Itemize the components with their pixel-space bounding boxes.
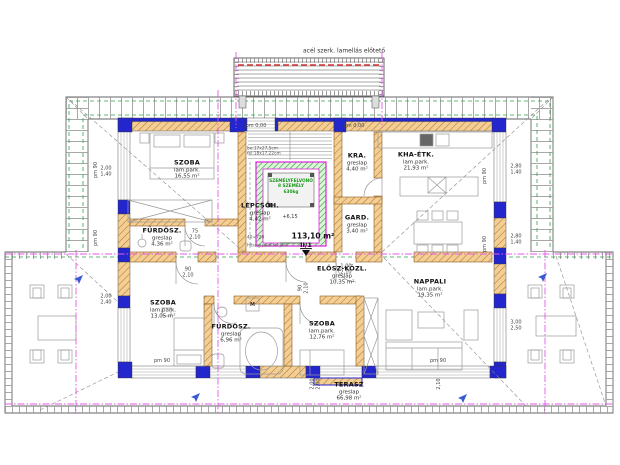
level-marker-icon [302, 250, 310, 256]
terrace-left-furniture [30, 285, 76, 363]
arrow-marker-icons [74, 273, 547, 403]
elevator-shaft [256, 162, 326, 246]
wardrobe-top-left [128, 200, 212, 222]
washing-machine-label: M [250, 302, 255, 308]
exterior-walls [118, 118, 506, 385]
bottom-exterior-wall [132, 366, 506, 385]
floor-plan-drawing [0, 0, 620, 465]
right-exterior-wall [494, 132, 506, 378]
wardrobe-nappali [364, 298, 378, 374]
terrace-right-furniture [528, 285, 576, 363]
floor-plan: acél szerk. lamellás előtető SZOBA lam.p… [0, 0, 620, 465]
core-top-window [244, 118, 278, 131]
